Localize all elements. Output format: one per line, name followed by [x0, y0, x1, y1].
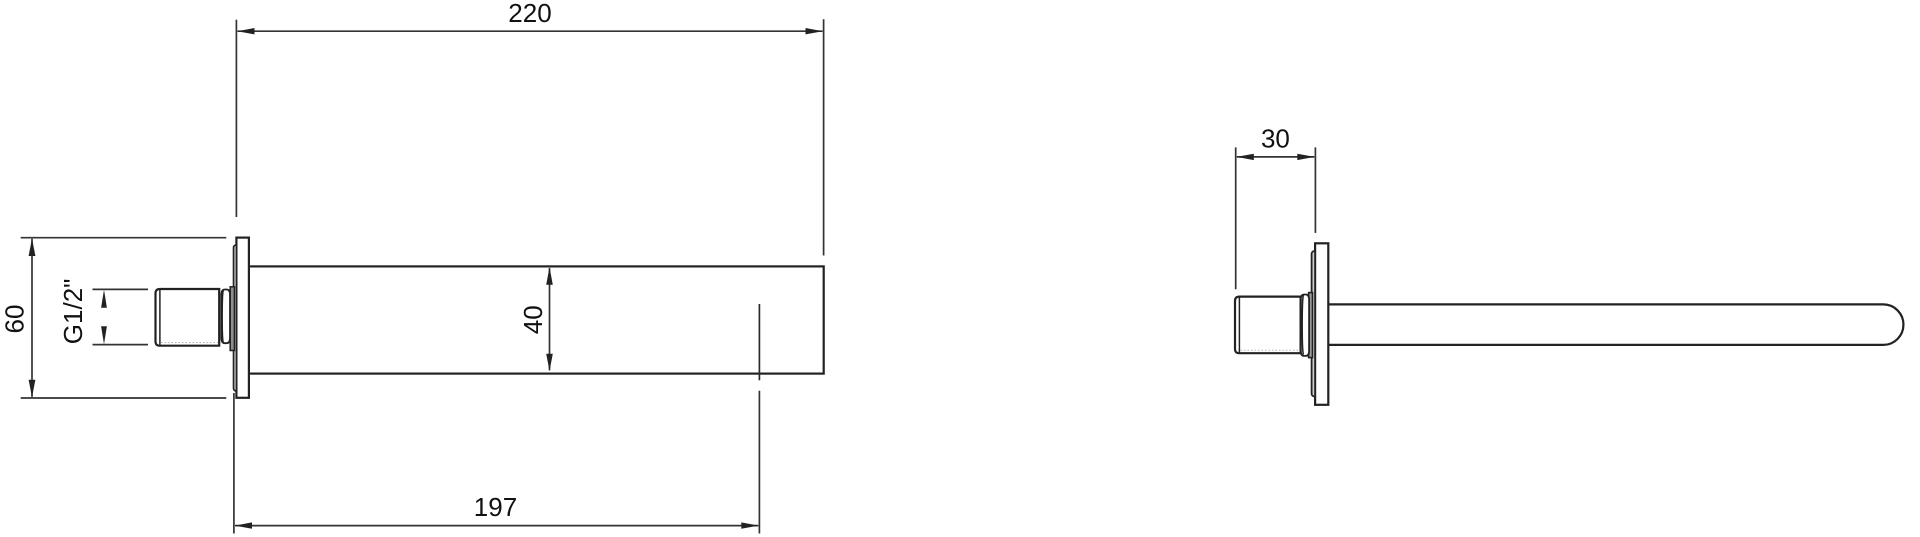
svg-text:220: 220	[508, 0, 551, 28]
svg-text:30: 30	[1261, 124, 1290, 154]
svg-text:197: 197	[474, 492, 517, 522]
svg-text:40: 40	[518, 305, 548, 334]
svg-text:60: 60	[0, 305, 30, 334]
svg-text:G1/2": G1/2"	[58, 279, 88, 345]
